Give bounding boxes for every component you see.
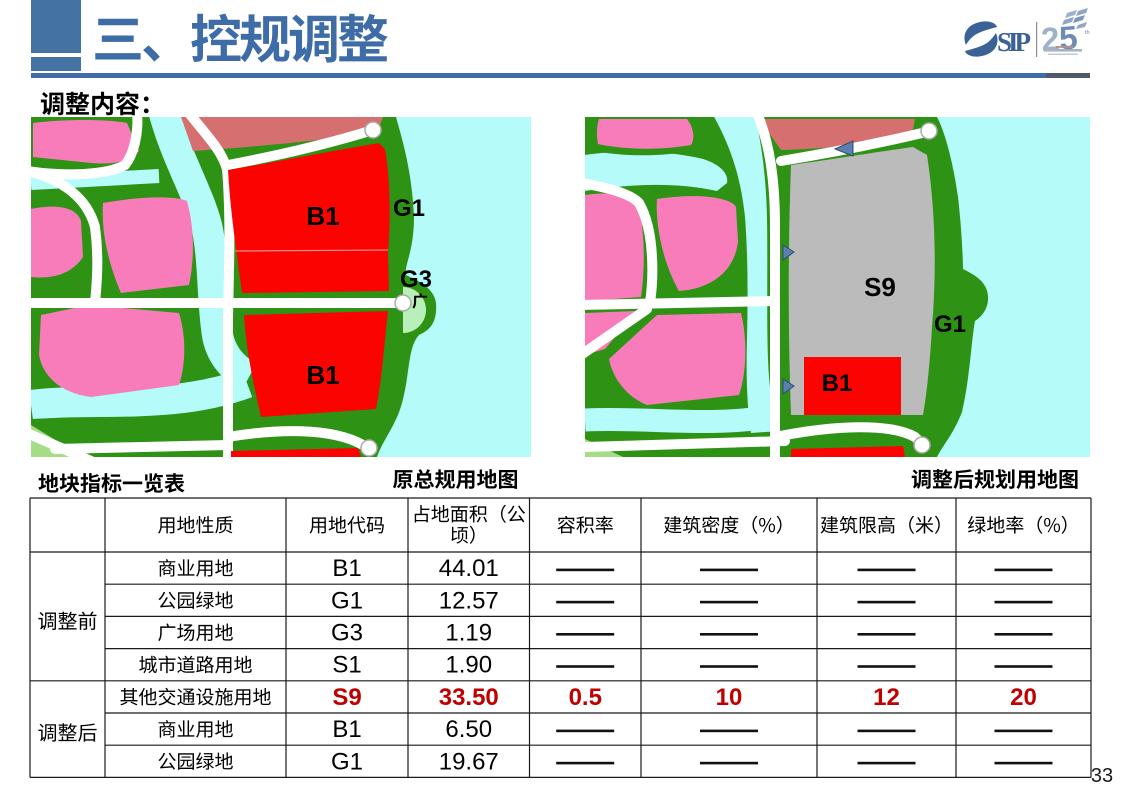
svg-text:B1: B1 <box>306 201 339 231</box>
svg-text:G1: G1 <box>331 748 363 775</box>
svg-text:20: 20 <box>1010 684 1037 711</box>
svg-text:33: 33 <box>1091 765 1113 787</box>
svg-text:B1: B1 <box>332 555 361 582</box>
svg-text:G1: G1 <box>934 311 966 338</box>
svg-text:S9: S9 <box>864 272 896 302</box>
svg-text:S1: S1 <box>332 652 361 679</box>
svg-text:1.90: 1.90 <box>445 652 492 679</box>
svg-text:G1: G1 <box>331 587 363 614</box>
svg-text:19.67: 19.67 <box>439 748 499 775</box>
svg-text:1.19: 1.19 <box>445 620 492 647</box>
svg-text:0.5: 0.5 <box>569 684 602 711</box>
svg-text:33.50: 33.50 <box>439 684 499 711</box>
svg-text:SIP: SIP <box>997 27 1031 57</box>
svg-text:B1: B1 <box>306 360 339 390</box>
svg-text:44.01: 44.01 <box>439 555 499 582</box>
svg-text:12.57: 12.57 <box>439 587 499 614</box>
svg-text:G3: G3 <box>400 266 432 293</box>
svg-text:6.50: 6.50 <box>445 716 492 743</box>
svg-text:10: 10 <box>716 684 743 711</box>
svg-text:S9: S9 <box>332 684 361 711</box>
svg-text:G1: G1 <box>393 195 425 222</box>
svg-text:G3: G3 <box>331 620 363 647</box>
svg-text:B1: B1 <box>822 370 853 397</box>
svg-text:th: th <box>1085 30 1090 36</box>
svg-text:B1: B1 <box>332 716 361 743</box>
svg-text:12: 12 <box>873 684 900 711</box>
